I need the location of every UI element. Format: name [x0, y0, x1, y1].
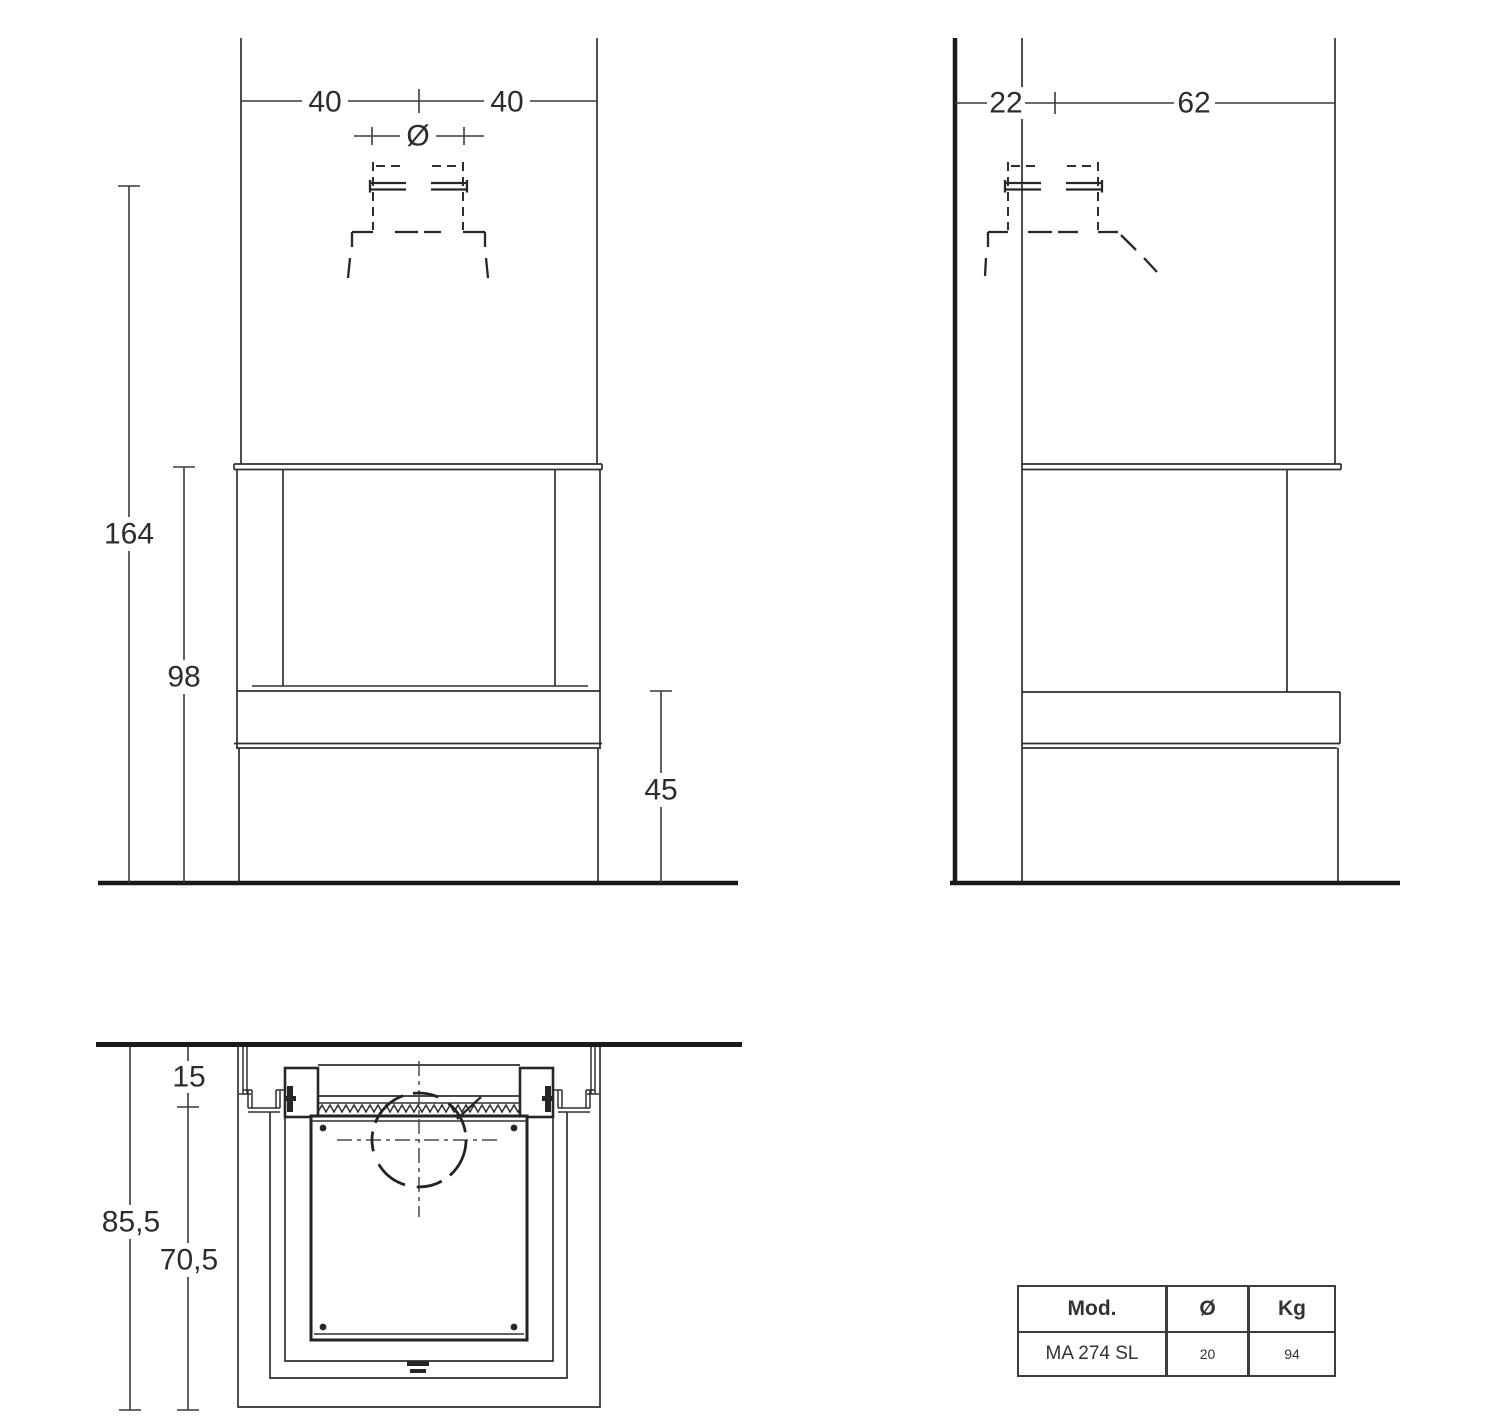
- dim-plan-inner-depth-label: 70,5: [160, 1244, 218, 1277]
- spec-table-model-value: MA 274 SL: [1019, 1331, 1165, 1375]
- hood-lip-side: [1022, 464, 1341, 470]
- dim-opening-height: 98: [165, 467, 204, 883]
- dim-opening-height-label: 98: [167, 661, 200, 694]
- dim-plan-wall-clearance-label: 15: [172, 1061, 205, 1094]
- bench-slab: [234, 744, 602, 749]
- plan-section-view: 85,5 15 70,5: [96, 1045, 742, 1411]
- dim-depth: 22 62: [955, 87, 1335, 120]
- spec-table: Mod. Ø Kg MA 274 SL 20 94: [1017, 1285, 1336, 1377]
- side-elevation-view: 22 62: [950, 38, 1400, 885]
- dim-width: 40 40: [241, 86, 597, 119]
- dim-wall-gap-label: 22: [989, 87, 1022, 120]
- flue-pipe-dashed-side: [985, 162, 1157, 276]
- spec-table-header-model: Mod.: [1019, 1287, 1165, 1331]
- hood-lip: [234, 464, 602, 470]
- dim-depth-label: 62: [1177, 87, 1210, 120]
- technical-drawing-page: 40 40 Ø: [0, 0, 1500, 1427]
- dim-total-height: 164: [103, 186, 156, 883]
- front-elevation-view: 40 40 Ø: [98, 38, 738, 883]
- dim-total-height-label: 164: [104, 518, 154, 551]
- dim-plan-inner-depths: 15 70,5: [158, 1047, 220, 1410]
- base-plinth: [239, 748, 598, 881]
- door-latch-mark: [407, 1361, 429, 1373]
- spec-table-header-diameter: Ø: [1165, 1287, 1247, 1331]
- dim-flue-diameter-label: Ø: [406, 120, 429, 153]
- fireplace-technical-drawing: 40 40 Ø: [0, 0, 1500, 1427]
- spec-table-weight-value: 94: [1247, 1331, 1334, 1375]
- dim-plan-total-depth: 85,5: [102, 1047, 161, 1410]
- dim-bench-height: 45: [642, 691, 681, 883]
- dim-flue-diameter: Ø: [354, 120, 484, 153]
- dim-width-right-label: 40: [490, 86, 523, 119]
- dim-width-left-label: 40: [308, 86, 341, 119]
- spec-table-header-weight: Kg: [1247, 1287, 1334, 1331]
- bench-slab-side: [1022, 692, 1340, 748]
- spec-table-diameter-value: 20: [1165, 1331, 1247, 1375]
- dim-bench-height-label: 45: [644, 774, 677, 807]
- firebox-body: [237, 470, 600, 749]
- dim-plan-total-depth-label: 85,5: [102, 1206, 160, 1239]
- flue-pipe-dashed: [348, 162, 488, 278]
